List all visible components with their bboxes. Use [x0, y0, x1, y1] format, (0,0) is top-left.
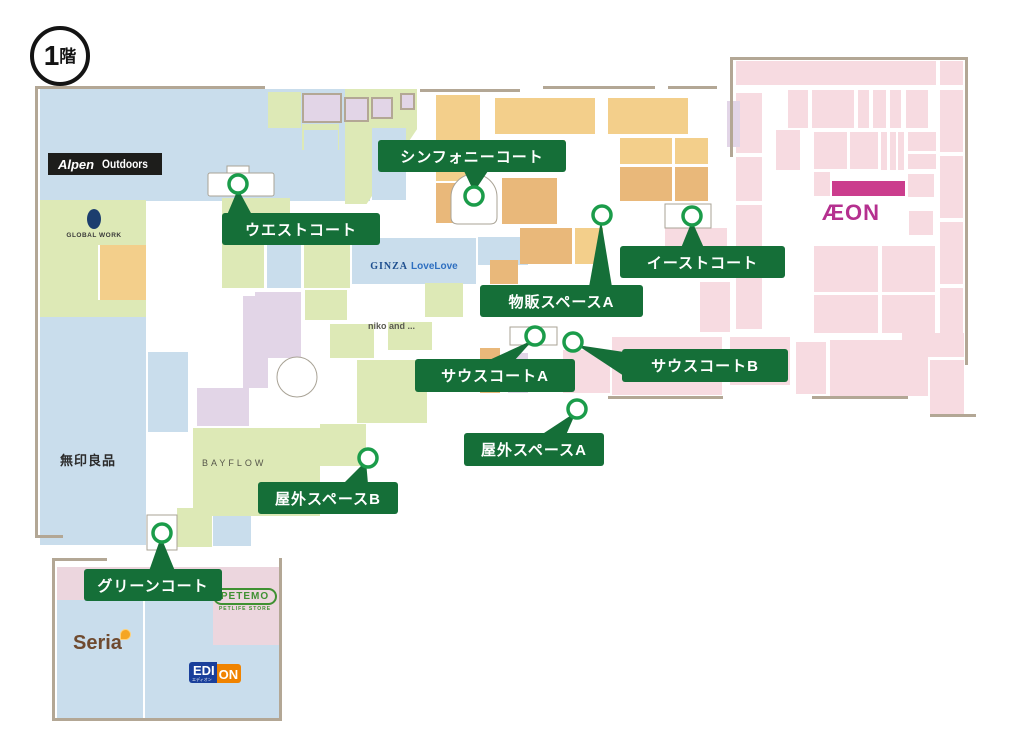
label-outdoor-space-b[interactable]: 屋外スペースB: [258, 482, 398, 514]
pointer-sales-a: [589, 220, 612, 287]
floor-badge: 1 階: [30, 26, 90, 86]
label-west-court[interactable]: ウエストコート: [222, 213, 380, 245]
label-east-court[interactable]: イーストコート: [620, 246, 785, 278]
label-symphony-court[interactable]: シンフォニーコート: [378, 140, 566, 172]
marker-outdoor-space-b[interactable]: [359, 449, 377, 467]
marker-sales-space-a[interactable]: [593, 206, 611, 224]
plaza-circle: [277, 357, 317, 397]
marker-south-court-a[interactable]: [526, 327, 544, 345]
label-outdoor-space-a[interactable]: 屋外スペースA: [464, 433, 604, 466]
floor-map: 1 階: [0, 0, 1022, 737]
label-sales-space-a[interactable]: 物販スペースA: [480, 285, 643, 317]
pointer-south-b: [577, 345, 624, 376]
marker-outdoor-space-a[interactable]: [568, 400, 586, 418]
marker-west-court[interactable]: [229, 175, 247, 193]
label-green-court[interactable]: グリーンコート: [84, 569, 222, 601]
floor-suffix: 階: [59, 48, 76, 65]
marker-symphony-court[interactable]: [465, 187, 483, 205]
marker-south-court-b[interactable]: [564, 333, 582, 351]
marker-green-court[interactable]: [153, 524, 171, 542]
floor-number: 1: [44, 42, 60, 70]
marker-east-court[interactable]: [683, 207, 701, 225]
label-south-court-b[interactable]: サウスコートB: [622, 349, 788, 382]
label-south-court-a[interactable]: サウスコートA: [415, 359, 575, 392]
